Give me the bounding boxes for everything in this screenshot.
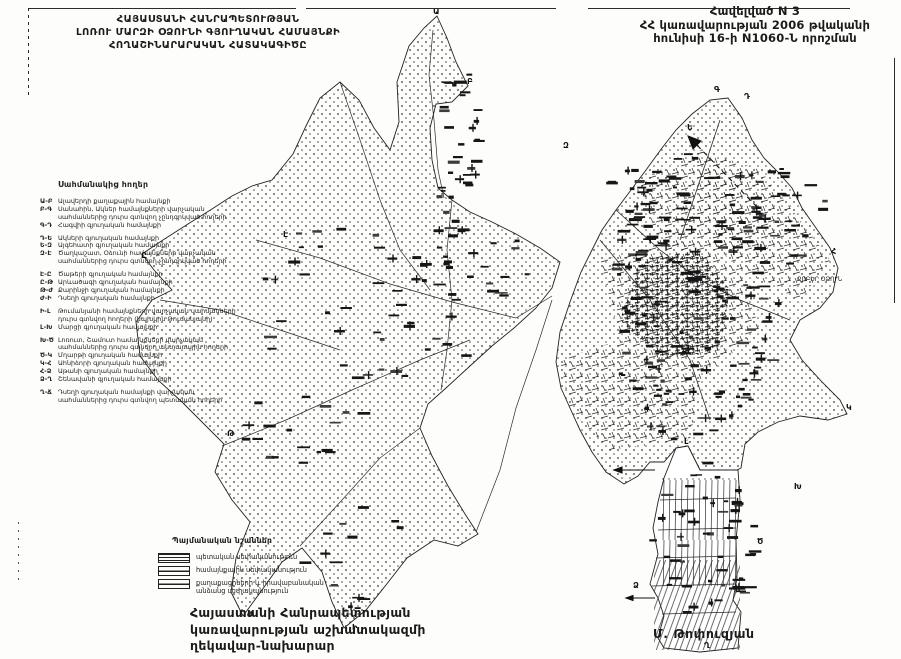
document-title: ՀԱՅԱՍՏԱՆԻ ՀԱՆՐԱՊԵՏՈՒԹՅԱՆ ԼՈՌՈՒ ՄԱՐԶԻ ՕՁՈ… — [58, 13, 358, 52]
legend-item-code: Ժ-Ի — [40, 295, 58, 303]
document-title-line2: ԼՈՌՈՒ ՄԱՐԶԻ ՕՁՈՒՆԻ ԳՅՈՒՂԱԿԱՆ ՀԱՄԱՅՆՔԻ — [58, 26, 358, 39]
boundary-letter: Զ — [563, 141, 569, 150]
legend-item-text: Շենավանի գյուղական համայնքի — [58, 376, 171, 384]
legend-item-text: սահմաններից դուրս գտնվող պետական հողերի — [58, 397, 222, 405]
boundary-letter: Է — [283, 230, 288, 239]
conventional-signs-title: Պայմանական նշաններ — [172, 537, 348, 545]
legend-item-code: Ի-Լ — [40, 308, 58, 316]
boundary-letter: Ե — [687, 123, 693, 132]
page-frame-top-2 — [306, 8, 556, 9]
conventional-signs-rows: պետական սեփականություն համայնքային սեփակ… — [158, 553, 348, 595]
legend-item-code: Ղ-Ճ — [40, 389, 58, 397]
boundary-letter: Խ — [794, 482, 802, 491]
boundary-letter: Ձ — [633, 581, 639, 590]
legend-item-code: Գ-Դ — [40, 222, 58, 230]
page-frame-right — [894, 58, 895, 303]
signature-block: Հայաստանի Հանրապետության կառավարության ա… — [190, 605, 426, 655]
boundary-letter: Ղ — [704, 641, 710, 650]
legend-item-text: Մարցի գյուղական համայնքի — [58, 324, 157, 332]
ownership-legend-item: համայնքային սեփականություն — [158, 566, 348, 576]
boundary-letter: Դ — [744, 92, 750, 101]
page-frame-top-1 — [28, 8, 296, 9]
signatory-name: Մ. Թոփուզյան — [653, 626, 755, 641]
boundary-legend: Սահմանակից հողեր Ա-Բ Ալավերդի քաղաքային … — [40, 181, 280, 405]
map-east-region — [556, 98, 847, 484]
legend-item-code: Խ-Ծ — [40, 337, 58, 345]
legend-item: Գ-Դ Հագվիի գյուղական համայնքի — [40, 222, 280, 230]
ownership-swatch-icon — [158, 579, 190, 589]
place-label: ՔՈԲԵՐ ՕՁՈՒՆ — [797, 276, 843, 283]
boundary-legend-rows: Ա-Բ Ալավերդի քաղաքային համայնքի Բ-Գ Սանա… — [40, 198, 280, 405]
legend-item-code: Զ-Է — [40, 250, 58, 258]
legend-item: Լ-Խ Մարցի գյուղական համայնքի — [40, 324, 280, 332]
boundary-letter: Գ — [714, 85, 720, 94]
boundary-letter: Կ — [846, 403, 852, 412]
legend-item: Ժ-Ի Դսեղի գյուղական համայնքի — [40, 295, 280, 303]
page-frame-left — [28, 8, 29, 98]
document-title-line1: ՀԱՅԱՍՏԱՆԻ ՀԱՆՐԱՊԵՏՈՒԹՅԱՆ — [58, 13, 358, 26]
ownership-swatch-icon — [158, 566, 190, 576]
decision-year: ՀՀ կառավարության 2006 թվականի — [612, 19, 898, 33]
legend-item: սահմաններից դուրս գտնվող չընդգրկված հողե… — [40, 258, 280, 266]
ownership-label: համայնքային սեփականություն — [196, 566, 307, 574]
legend-item-code: Ձ-Ղ — [40, 376, 58, 384]
ownership-label: քաղաքացիների և իրավաբանական անձանց սեփակ… — [196, 579, 324, 595]
legend-item-text: Դսեղի գյուղական համայնքի — [58, 295, 155, 303]
page-frame-left-lower — [18, 522, 19, 582]
ownership-legend-item: քաղաքացիների և իրավաբանական անձանց սեփակ… — [158, 579, 348, 595]
appendix-reference: Հավելված N 3 ՀՀ կառավարության 2006 թվակա… — [612, 5, 898, 46]
ownership-label: պետական սեփականություն — [196, 553, 297, 561]
boundary-letter: Ծ — [757, 537, 763, 546]
document-title-line3: ՀՈՂԱՇԻՆԱՐԱՐԱԿԱՆ ՀԱՏԱԿԱԳԻԾԸ — [58, 39, 358, 52]
boundary-letter: Լ — [684, 437, 689, 446]
boundary-letter: Բ — [467, 77, 473, 86]
appendix-number: Հավելված N 3 — [612, 5, 898, 19]
signature-line3: ղեկավար-նախարար — [190, 638, 426, 655]
ownership-swatch-icon — [158, 553, 190, 563]
signature-line1: Հայաստանի Հանրապետության — [190, 605, 426, 622]
ownership-legend-item: պետական սեփականություն — [158, 553, 348, 563]
signature-line2: կառավարության աշխատակազմի — [190, 622, 426, 639]
boundary-letter: Թ — [227, 429, 235, 438]
legend-item: սահմաններից դուրս գտնվող պետական հողերի — [40, 397, 280, 405]
legend-item-code: Լ-Խ — [40, 324, 58, 332]
legend-item-text: Հագվիի գյուղական համայնքի — [58, 222, 161, 230]
conventional-signs-box: Պայմանական նշաններ պետական սեփականությու… — [158, 537, 348, 598]
legend-item-text: սահմաններից դուրս գտնվող չընդգրկված հողե… — [58, 258, 227, 266]
legend-item: Ձ-Ղ Շենավանի գյուղական համայնքի — [40, 376, 280, 384]
decision-number: հունիսի 16-ի N1060-Ն որոշման — [612, 32, 898, 46]
boundary-legend-title: Սահմանակից հողեր — [58, 181, 280, 189]
boundary-letter: Հ — [831, 247, 836, 256]
legend-item-code: Բ-Գ — [40, 206, 58, 214]
